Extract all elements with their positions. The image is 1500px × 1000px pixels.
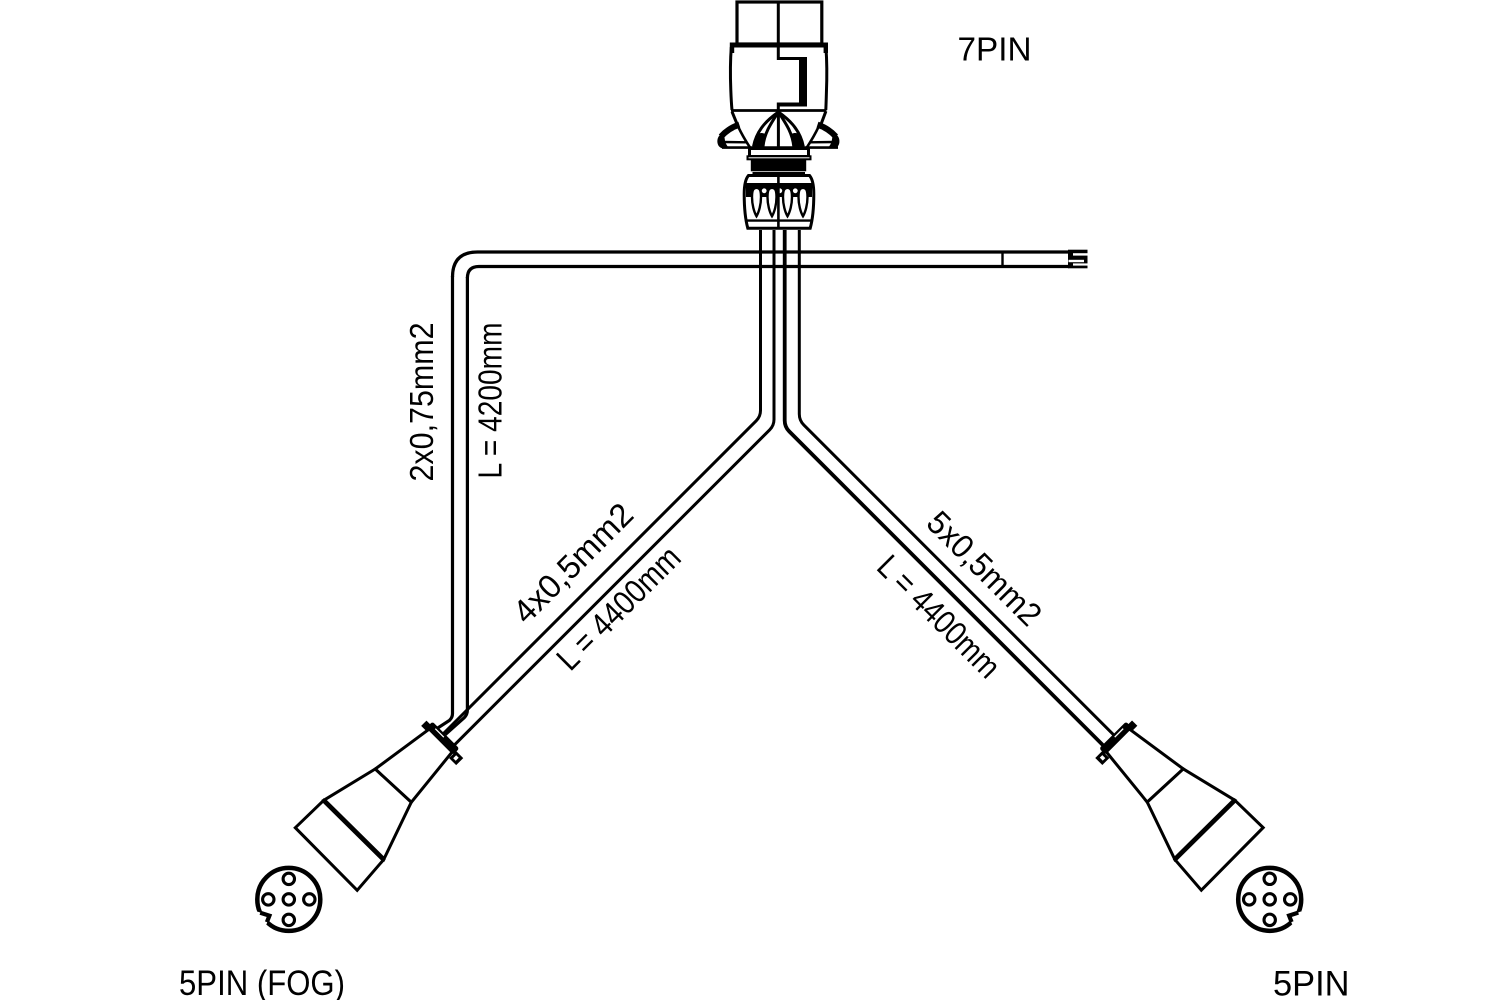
svg-text:7PIN: 7PIN [958,31,1032,68]
svg-text:5PIN (FOG): 5PIN (FOG) [179,964,345,1000]
svg-text:2x0,75mm2: 2x0,75mm2 [403,323,440,482]
svg-text:5PIN: 5PIN [1273,965,1350,1000]
svg-text:L = 4200mm: L = 4200mm [472,323,509,479]
